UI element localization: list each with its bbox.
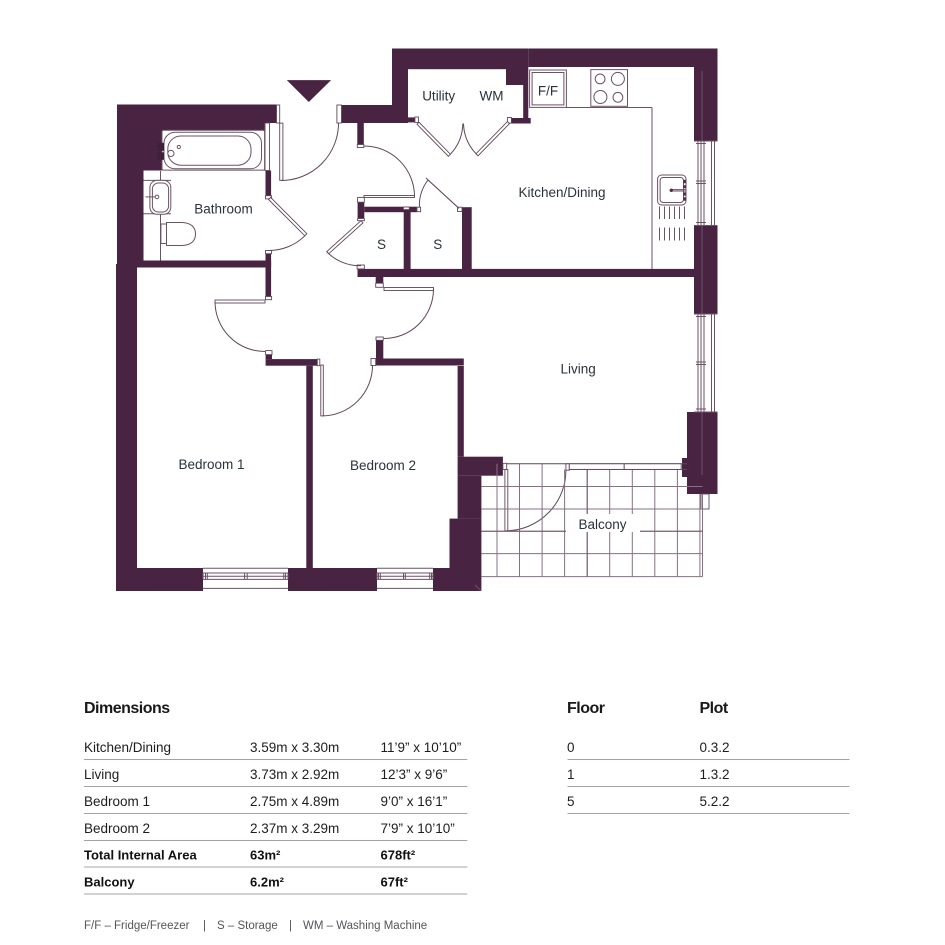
svg-text:0.3.2: 0.3.2 [700, 740, 730, 755]
svg-text:2.37m x 3.29m: 2.37m x 3.29m [250, 821, 339, 836]
svg-text:Balcony: Balcony [84, 875, 135, 890]
svg-text:Bedroom 2: Bedroom 2 [350, 458, 416, 473]
svg-text:1.3.2: 1.3.2 [700, 767, 730, 782]
svg-text:|: | [289, 920, 292, 932]
svg-text:Plot: Plot [700, 700, 729, 717]
svg-text:6.2m²: 6.2m² [250, 875, 285, 890]
svg-text:Living: Living [561, 362, 596, 377]
svg-text:9’0” x 16’1”: 9’0” x 16’1” [381, 794, 448, 809]
svg-text:Balcony: Balcony [578, 517, 626, 532]
svg-text:5.2.2: 5.2.2 [700, 794, 730, 809]
svg-text:S: S [377, 237, 386, 252]
svg-text:Bedroom 1: Bedroom 1 [84, 794, 150, 809]
svg-text:F/F: F/F [538, 84, 558, 99]
svg-text:678ft²: 678ft² [381, 848, 416, 863]
svg-text:3.59m x 3.30m: 3.59m x 3.30m [250, 740, 339, 755]
svg-text:Floor: Floor [567, 700, 605, 717]
svg-text:Living: Living [84, 767, 119, 782]
svg-text:WM – Washing Machine: WM – Washing Machine [303, 920, 427, 932]
svg-text:12’3” x 9’6”: 12’3” x 9’6” [381, 767, 448, 782]
svg-text:Kitchen/Dining: Kitchen/Dining [518, 185, 605, 200]
svg-text:WM: WM [480, 88, 504, 103]
svg-text:3.73m x 2.92m: 3.73m x 2.92m [250, 767, 339, 782]
svg-text:0: 0 [567, 740, 575, 755]
svg-text:S – Storage: S – Storage [217, 920, 278, 932]
svg-text:67ft²: 67ft² [381, 875, 409, 890]
svg-text:1: 1 [567, 767, 575, 782]
svg-text:Dimensions: Dimensions [84, 700, 170, 717]
svg-text:7’9” x 10’10”: 7’9” x 10’10” [381, 821, 455, 836]
svg-text:Utility: Utility [422, 88, 455, 103]
svg-text:F/F – Fridge/Freezer: F/F – Fridge/Freezer [84, 920, 190, 932]
svg-text:Bedroom 2: Bedroom 2 [84, 821, 150, 836]
svg-text:11’9” x 10’10”: 11’9” x 10’10” [381, 740, 462, 755]
svg-text:5: 5 [567, 794, 575, 809]
svg-text:Total Internal Area: Total Internal Area [84, 848, 197, 863]
svg-text:|: | [203, 920, 206, 932]
svg-text:Kitchen/Dining: Kitchen/Dining [84, 740, 171, 755]
svg-text:63m²: 63m² [250, 848, 281, 863]
svg-text:Bathroom: Bathroom [194, 201, 253, 216]
svg-text:S: S [433, 237, 442, 252]
svg-text:Bedroom 1: Bedroom 1 [178, 457, 244, 472]
svg-text:2.75m x 4.89m: 2.75m x 4.89m [250, 794, 339, 809]
